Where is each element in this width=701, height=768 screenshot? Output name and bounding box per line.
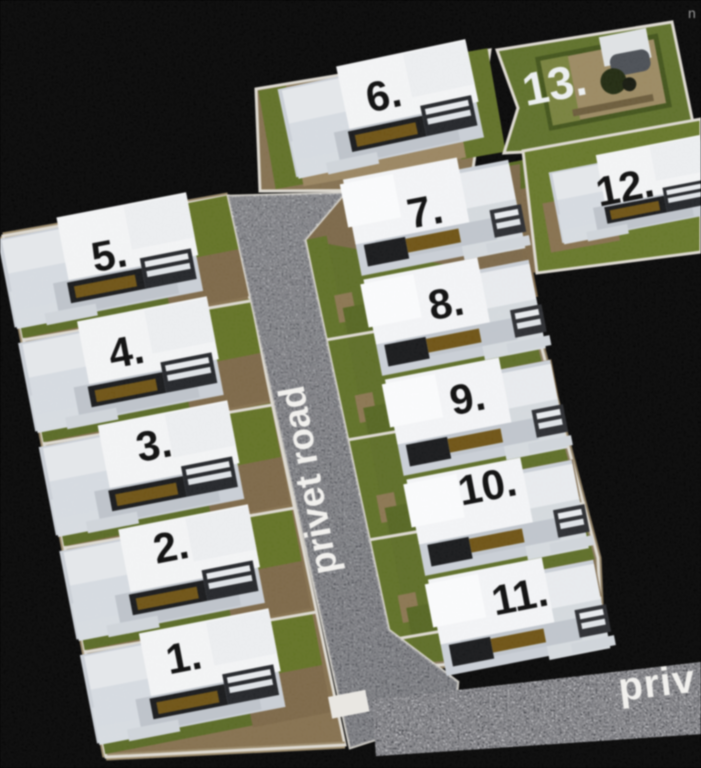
svg-text:n: n	[688, 5, 696, 21]
